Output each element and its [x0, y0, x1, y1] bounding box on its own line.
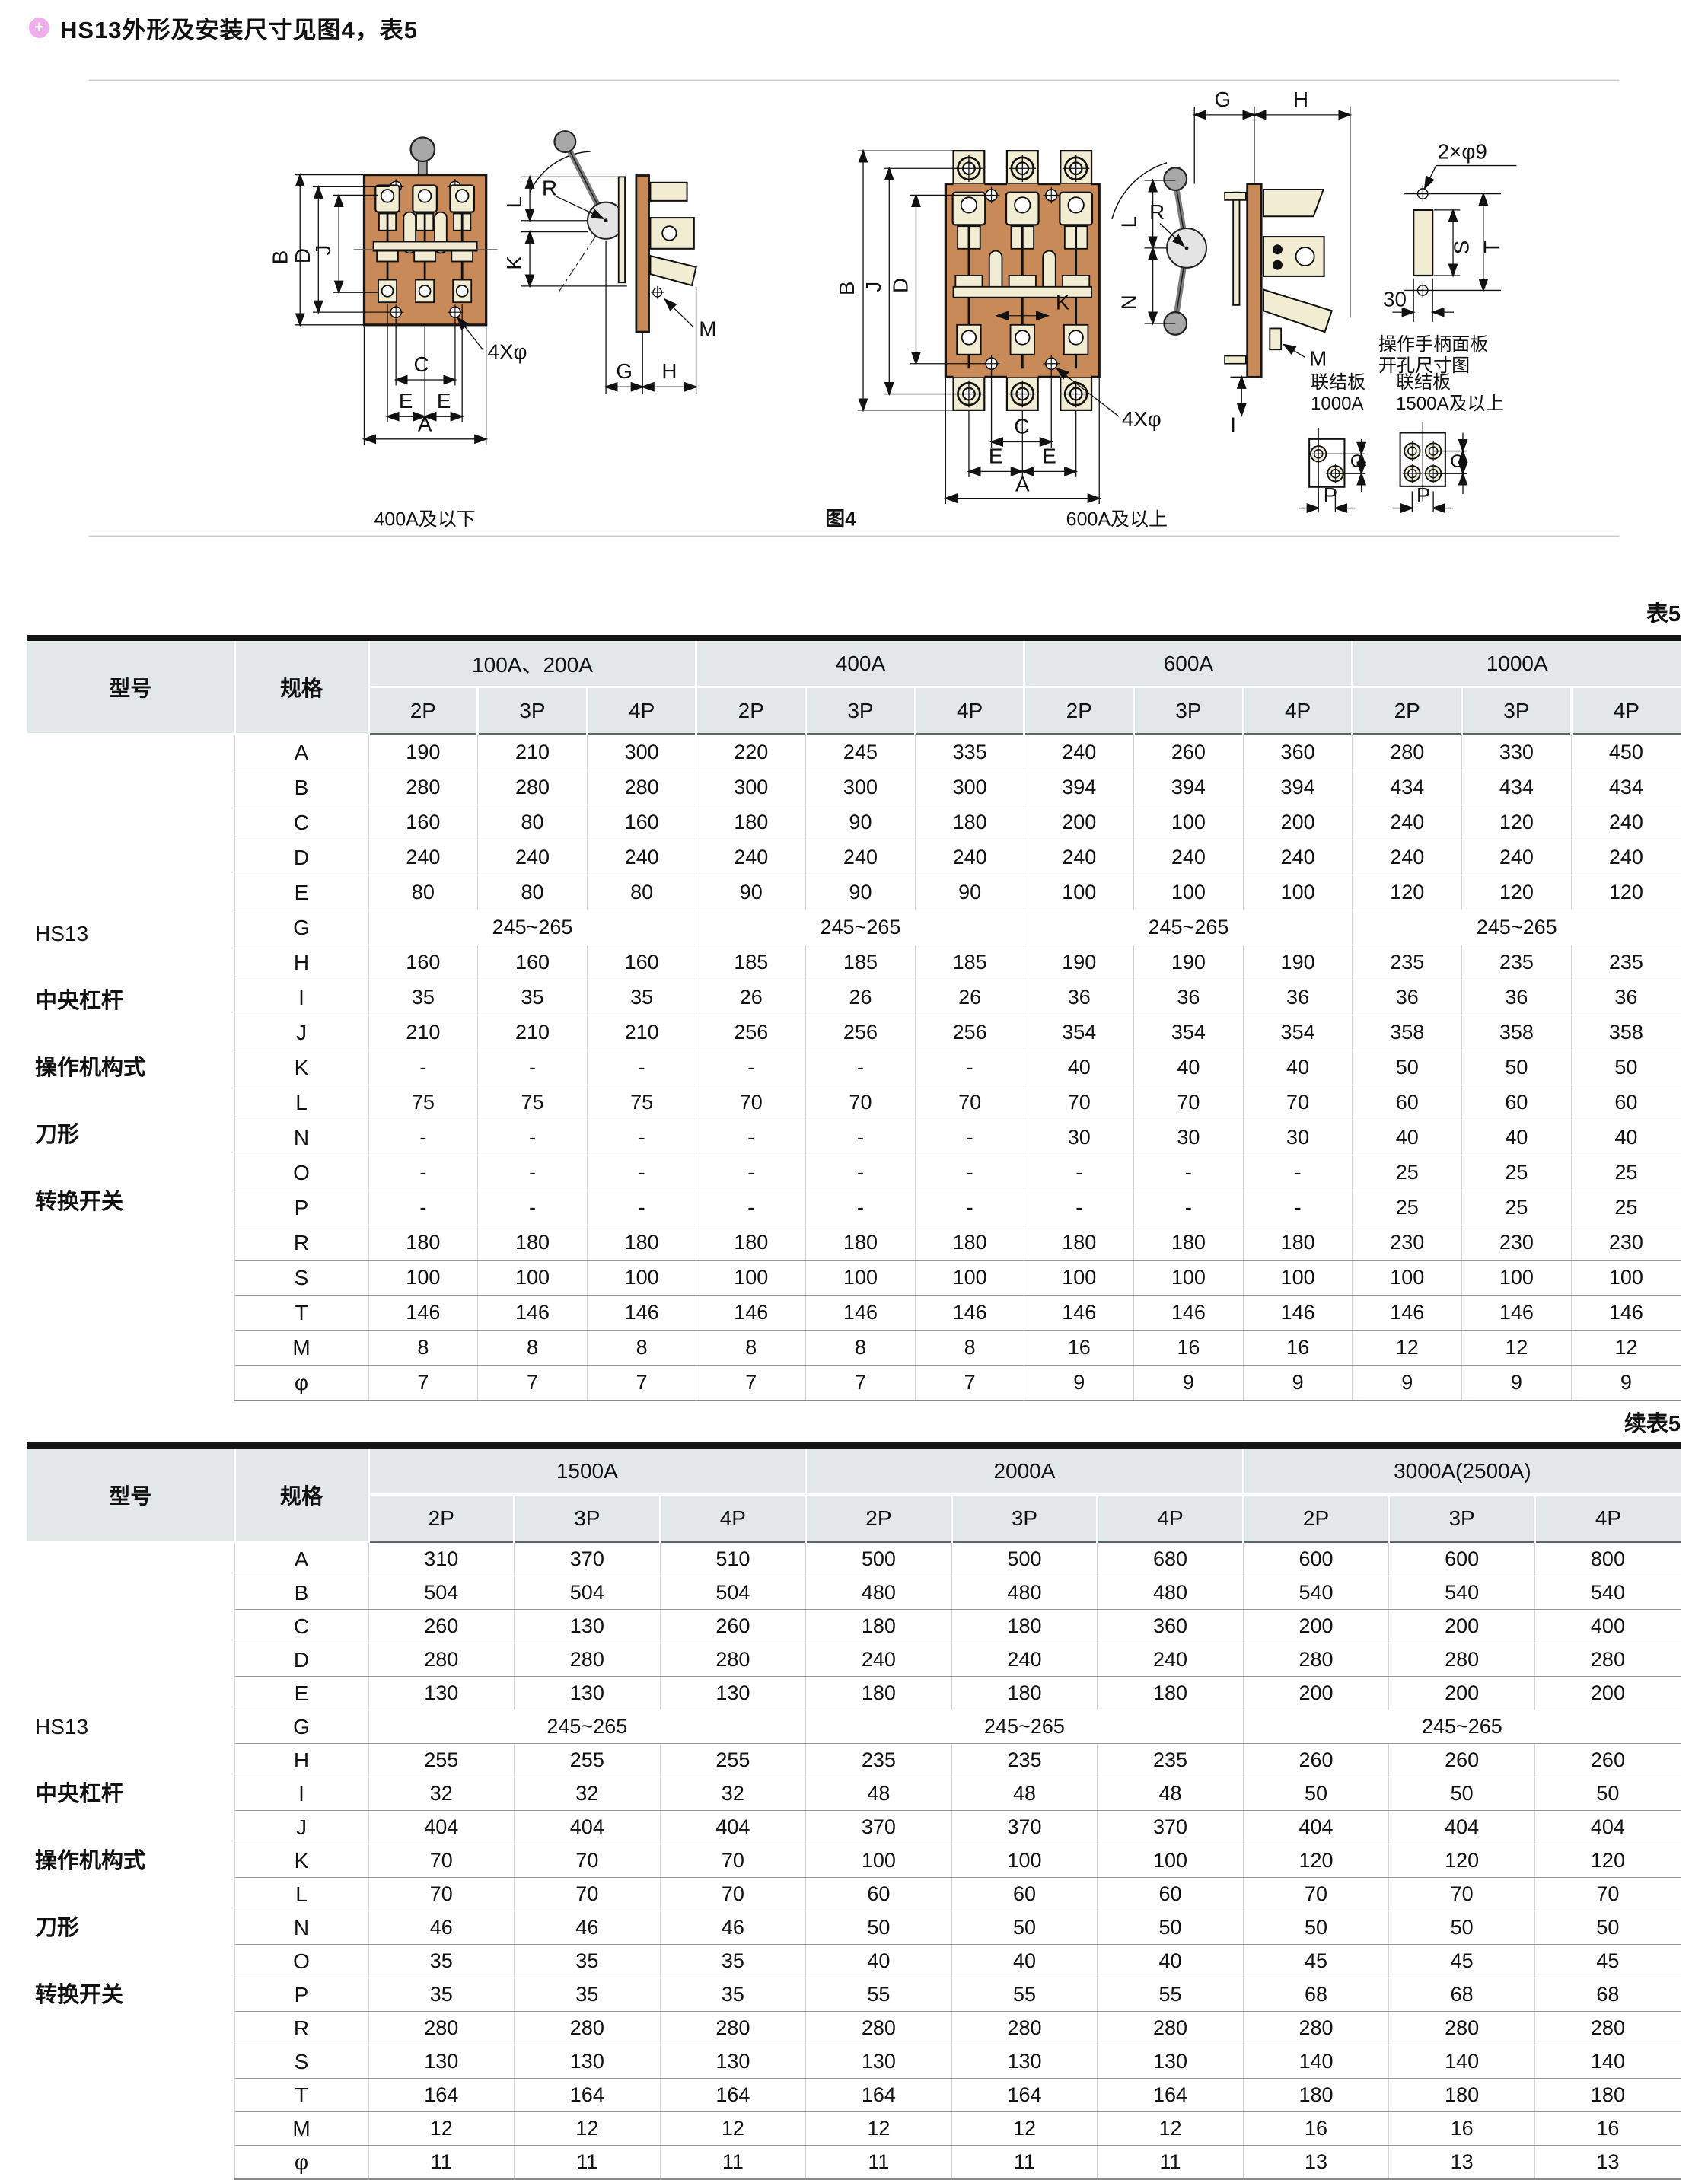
cell-E-4: 180: [951, 1677, 1098, 1710]
cell-T-4: 146: [806, 1296, 916, 1331]
cell-N-0: 46: [368, 1911, 515, 1945]
cell-N-11: 40: [1571, 1120, 1681, 1155]
table-row-D: D280280280240240240280280280: [27, 1643, 1681, 1677]
cell-N-9: 40: [1353, 1120, 1462, 1155]
cell-I-5: 48: [1098, 1777, 1244, 1811]
dim-label-j2: J: [862, 282, 885, 292]
cell-φ-2: 7: [587, 1366, 696, 1401]
cell-C-1: 80: [478, 805, 588, 840]
cell-H-4: 235: [951, 1744, 1098, 1777]
cell-O-7: 45: [1389, 1945, 1535, 1978]
cell-φ-6: 13: [1243, 2146, 1389, 2180]
cell-R-1: 180: [478, 1225, 588, 1261]
cell-φ-2: 11: [660, 2146, 806, 2180]
cell-B-0: 504: [368, 1576, 515, 1610]
dim-label-g2: G: [1214, 88, 1231, 111]
cell-T-0: 146: [368, 1296, 478, 1331]
spec-cell-φ: φ: [234, 2146, 368, 2180]
col-header-spec: 规格: [234, 1445, 368, 1542]
spec-cell-H: H: [234, 945, 368, 980]
cell-C-6: 200: [1243, 1610, 1389, 1643]
cell-T-6: 180: [1243, 2079, 1389, 2112]
cell-I-7: 36: [1134, 980, 1244, 1015]
cell-J-10: 358: [1462, 1015, 1572, 1050]
cell-A-8: 800: [1534, 1542, 1681, 1576]
cell-M-4: 12: [951, 2112, 1098, 2146]
cell-O-5: -: [915, 1155, 1024, 1190]
cell-E-1: 130: [515, 1677, 661, 1710]
dim-label-p2: P: [1416, 483, 1431, 507]
table-row-C: C1608016018090180200100200240120240: [27, 805, 1681, 840]
cell-R-5: 180: [915, 1225, 1024, 1261]
cell-C-11: 240: [1571, 805, 1681, 840]
model-line-3: 刀形: [35, 1895, 234, 1962]
cell-B-6: 394: [1024, 770, 1134, 805]
cell-A-9: 280: [1353, 735, 1462, 770]
spec-cell-C: C: [234, 805, 368, 840]
spec-cell-P: P: [234, 1190, 368, 1225]
cell-I-6: 50: [1243, 1777, 1389, 1811]
cell-J-3: 370: [806, 1811, 952, 1844]
cell-R-3: 280: [806, 2012, 952, 2045]
cell-K-2: 70: [660, 1844, 806, 1878]
cell-R-11: 230: [1571, 1225, 1681, 1261]
cell-B-1: 504: [515, 1576, 661, 1610]
cell-I-10: 36: [1462, 980, 1572, 1015]
spec-cell-D: D: [234, 840, 368, 875]
cell-N-6: 50: [1243, 1911, 1389, 1945]
cell-φ-5: 11: [1098, 2146, 1244, 2180]
cell-O-2: 35: [660, 1945, 806, 1978]
cell-K-1: 70: [515, 1844, 661, 1878]
cell-A-1: 370: [515, 1542, 661, 1576]
cell-I-8: 50: [1534, 1777, 1681, 1811]
cell-B-6: 540: [1243, 1576, 1389, 1610]
cell-H-5: 185: [915, 945, 1024, 980]
group-header-2: 600A: [1024, 638, 1353, 687]
cell-φ-3: 11: [806, 2146, 952, 2180]
spec-cell-M: M: [234, 1331, 368, 1366]
cell-J-7: 404: [1389, 1811, 1535, 1844]
table-row-N: N------303030404040: [27, 1120, 1681, 1155]
cell-J-8: 354: [1243, 1015, 1353, 1050]
table-row-C: C260130260180180360200200400: [27, 1610, 1681, 1643]
cell-M-9: 12: [1353, 1331, 1462, 1366]
dim-label-e4: E: [1042, 444, 1056, 467]
cell-φ-1: 7: [478, 1366, 588, 1401]
dim-label-m2: M: [1309, 347, 1327, 371]
cell-P-0: 35: [368, 1978, 515, 2012]
cell-C-8: 200: [1243, 805, 1353, 840]
spec-cell-K: K: [234, 1844, 368, 1878]
cell-I-2: 35: [587, 980, 696, 1015]
table-row-G: G245~265245~265245~265: [27, 1710, 1681, 1744]
cell-S-6: 100: [1024, 1261, 1134, 1296]
cell-B-7: 540: [1389, 1576, 1535, 1610]
model-line-3: 刀形: [35, 1101, 234, 1168]
cell-O-1: -: [478, 1155, 588, 1190]
cell-D-4: 240: [951, 1643, 1098, 1677]
cell-R-2: 280: [660, 2012, 806, 2045]
table-row-R: R280280280280280280280280280: [27, 2012, 1681, 2045]
cell-L-8: 70: [1243, 1085, 1353, 1120]
bullet-icon: +: [29, 18, 49, 38]
group-header-1: 2000A: [806, 1445, 1244, 1495]
cell-S-4: 100: [806, 1261, 916, 1296]
cell-A-2: 300: [587, 735, 696, 770]
cell-B-0: 280: [368, 770, 478, 805]
table-row-L: L757575707070707070606060: [27, 1085, 1681, 1120]
sub-header-1-2: 4P: [915, 687, 1024, 735]
cell-T-2: 164: [660, 2079, 806, 2112]
cell-J-1: 404: [515, 1811, 661, 1844]
link2-caption-2: 1500A及以上: [1396, 394, 1504, 414]
table-row-O: O353535404040454545: [27, 1945, 1681, 1978]
cell-M-0: 12: [368, 2112, 515, 2146]
sub-header-3-0: 2P: [1353, 687, 1462, 735]
cell-D-3: 240: [696, 840, 806, 875]
cell-G-merged-2: 245~265: [1024, 910, 1353, 945]
cell-L-4: 60: [951, 1878, 1098, 1911]
spec-cell-K: K: [234, 1050, 368, 1085]
cell-T-8: 146: [1243, 1296, 1353, 1331]
cell-φ-0: 11: [368, 2146, 515, 2180]
cell-L-1: 70: [515, 1878, 661, 1911]
cell-I-5: 26: [915, 980, 1024, 1015]
cell-A-5: 335: [915, 735, 1024, 770]
cell-J-4: 256: [806, 1015, 916, 1050]
cell-T-10: 146: [1462, 1296, 1572, 1331]
cell-N-5: 50: [1098, 1911, 1244, 1945]
cell-L-4: 70: [806, 1085, 916, 1120]
cell-O-3: -: [696, 1155, 806, 1190]
cell-A-0: 190: [368, 735, 478, 770]
cell-C-2: 260: [660, 1610, 806, 1643]
cell-O-1: 35: [515, 1945, 661, 1978]
table-row-S: S130130130130130130140140140: [27, 2045, 1681, 2079]
cell-P-2: 35: [660, 1978, 806, 2012]
cell-H-10: 235: [1462, 945, 1572, 980]
cell-T-3: 164: [806, 2079, 952, 2112]
cell-T-5: 164: [1098, 2079, 1244, 2112]
spec-cell-O: O: [234, 1155, 368, 1190]
cell-K-1: -: [478, 1050, 588, 1085]
sub-header-2-0: 2P: [1243, 1495, 1389, 1542]
cell-L-3: 60: [806, 1878, 952, 1911]
cell-E-10: 120: [1462, 875, 1572, 910]
cell-I-0: 32: [368, 1777, 515, 1811]
cell-M-5: 12: [1098, 2112, 1244, 2146]
cell-L-8: 70: [1534, 1878, 1681, 1911]
dim-label-i2: I: [1230, 413, 1236, 437]
cell-G-merged-3: 245~265: [1353, 910, 1681, 945]
cell-E-0: 80: [368, 875, 478, 910]
table-row-M: M121212121212161616: [27, 2112, 1681, 2146]
cell-D-7: 280: [1389, 1643, 1535, 1677]
spec-cell-L: L: [234, 1085, 368, 1120]
cell-S-8: 100: [1243, 1261, 1353, 1296]
dim-label-o2: O: [1450, 451, 1464, 472]
spec-cell-J: J: [234, 1811, 368, 1844]
cell-O-6: -: [1024, 1155, 1134, 1190]
sub-header-1-0: 2P: [696, 687, 806, 735]
cell-E-4: 90: [806, 875, 916, 910]
cell-φ-0: 7: [368, 1366, 478, 1401]
cell-D-10: 240: [1462, 840, 1572, 875]
cell-R-0: 280: [368, 2012, 515, 2045]
cell-R-7: 180: [1134, 1225, 1244, 1261]
cell-H-11: 235: [1571, 945, 1681, 980]
cell-D-8: 280: [1534, 1643, 1681, 1677]
cell-B-8: 540: [1534, 1576, 1681, 1610]
sub-header-2-1: 3P: [1134, 687, 1244, 735]
cell-L-0: 70: [368, 1878, 515, 1911]
cell-N-6: 30: [1024, 1120, 1134, 1155]
cell-M-2: 12: [660, 2112, 806, 2146]
model-line-2: 操作机构式: [35, 1828, 234, 1895]
cell-K-5: -: [915, 1050, 1024, 1085]
cell-R-5: 280: [1098, 2012, 1244, 2045]
cell-S-2: 100: [587, 1261, 696, 1296]
spec-cell-A: A: [234, 735, 368, 770]
dim-label-h2: H: [1293, 88, 1308, 111]
cell-J-0: 404: [368, 1811, 515, 1844]
cell-E-6: 200: [1243, 1677, 1389, 1710]
cell-D-1: 280: [515, 1643, 661, 1677]
cell-A-10: 330: [1462, 735, 1572, 770]
cell-A-11: 450: [1571, 735, 1681, 770]
cell-A-6: 600: [1243, 1542, 1389, 1576]
cell-T-0: 164: [368, 2079, 515, 2112]
cell-D-8: 240: [1243, 840, 1353, 875]
cell-J-5: 370: [1098, 1811, 1244, 1844]
cell-B-9: 434: [1353, 770, 1462, 805]
spec-cell-P: P: [234, 1978, 368, 2012]
table-row-P: P---------252525: [27, 1190, 1681, 1225]
cell-R-6: 280: [1243, 2012, 1389, 2045]
cell-N-4: -: [806, 1120, 916, 1155]
cell-R-4: 280: [951, 2012, 1098, 2045]
cell-φ-11: 9: [1571, 1366, 1681, 1401]
cell-S-6: 140: [1243, 2045, 1389, 2079]
cell-R-6: 180: [1024, 1225, 1134, 1261]
cell-M-11: 12: [1571, 1331, 1681, 1366]
table5-continued-tag: 续表5: [27, 1412, 1681, 1436]
cell-I-9: 36: [1353, 980, 1462, 1015]
sub-header-3-1: 3P: [1462, 687, 1572, 735]
cell-E-9: 120: [1353, 875, 1462, 910]
cell-N-8: 30: [1243, 1120, 1353, 1155]
cell-C-7: 100: [1134, 805, 1244, 840]
cell-D-5: 240: [1098, 1643, 1244, 1677]
cell-L-5: 60: [1098, 1878, 1244, 1911]
cell-S-4: 130: [951, 2045, 1098, 2079]
cell-φ-3: 7: [696, 1366, 806, 1401]
cell-J-1: 210: [478, 1015, 588, 1050]
cell-E-1: 80: [478, 875, 588, 910]
cell-K-8: 40: [1243, 1050, 1353, 1085]
cell-O-7: -: [1134, 1155, 1244, 1190]
cell-J-4: 370: [951, 1811, 1098, 1844]
cell-H-6: 260: [1243, 1744, 1389, 1777]
cell-A-7: 260: [1134, 735, 1244, 770]
cell-R-0: 180: [368, 1225, 478, 1261]
cell-B-3: 300: [696, 770, 806, 805]
cell-A-7: 600: [1389, 1542, 1535, 1576]
dim-label-m-left: M: [699, 317, 716, 341]
cell-H-0: 160: [368, 945, 478, 980]
cell-A-5: 680: [1098, 1542, 1244, 1576]
cell-T-7: 146: [1134, 1296, 1244, 1331]
cell-O-4: -: [806, 1155, 916, 1190]
cell-A-4: 245: [806, 735, 916, 770]
cell-D-6: 240: [1024, 840, 1134, 875]
cell-B-5: 480: [1098, 1576, 1244, 1610]
cell-P-5: 55: [1098, 1978, 1244, 2012]
cell-P-2: -: [587, 1190, 696, 1225]
table-row-A: HS13中央杠杆操作机构式刀形转换开关A19021030022024533524…: [27, 735, 1681, 770]
cell-O-5: 40: [1098, 1945, 1244, 1978]
sub-header-1-2: 4P: [1098, 1495, 1244, 1542]
group-header-0: 100A、200A: [368, 638, 696, 687]
cell-S-10: 100: [1462, 1261, 1572, 1296]
table-row-L: L707070606060707070: [27, 1878, 1681, 1911]
model-line-4: 转换开关: [35, 1962, 234, 2029]
sub-header-2-2: 4P: [1534, 1495, 1681, 1542]
cell-D-5: 240: [915, 840, 1024, 875]
cell-E-8: 100: [1243, 875, 1353, 910]
page-title: HS13外形及安装尺寸见图4，表5: [60, 11, 418, 45]
cell-M-3: 12: [806, 2112, 952, 2146]
cell-φ-4: 11: [951, 2146, 1098, 2180]
cell-S-5: 130: [1098, 2045, 1244, 2079]
cell-E-7: 100: [1134, 875, 1244, 910]
table-row-B: B280280280300300300394394394434434434: [27, 770, 1681, 805]
cell-O-10: 25: [1462, 1155, 1572, 1190]
cell-A-1: 210: [478, 735, 588, 770]
cell-E-3: 90: [696, 875, 806, 910]
model-line-2: 操作机构式: [35, 1034, 234, 1101]
cell-S-11: 100: [1571, 1261, 1681, 1296]
cell-C-0: 160: [368, 805, 478, 840]
cell-A-3: 500: [806, 1542, 952, 1576]
model-line-4: 转换开关: [35, 1168, 234, 1235]
cell-C-6: 200: [1024, 805, 1134, 840]
cell-C-5: 360: [1098, 1610, 1244, 1643]
cell-M-6: 16: [1243, 2112, 1389, 2146]
cell-K-6: 40: [1024, 1050, 1134, 1085]
dim-label-g-left: G: [616, 359, 633, 383]
cell-I-7: 50: [1389, 1777, 1535, 1811]
cell-K-0: 70: [368, 1844, 515, 1878]
cell-G-merged-1: 245~265: [806, 1710, 1244, 1744]
sub-header-0-1: 3P: [478, 687, 588, 735]
cell-H-9: 235: [1353, 945, 1462, 980]
cell-E-2: 130: [660, 1677, 806, 1710]
table-row-B: B504504504480480480540540540: [27, 1576, 1681, 1610]
cell-O-4: 40: [951, 1945, 1098, 1978]
model-line-1: 中央杠杆: [35, 967, 234, 1034]
cell-S-1: 130: [515, 2045, 661, 2079]
cell-E-5: 180: [1098, 1677, 1244, 1710]
spec-cell-I: I: [234, 980, 368, 1015]
cell-O-3: 40: [806, 1945, 952, 1978]
cell-C-9: 240: [1353, 805, 1462, 840]
cell-P-4: 55: [951, 1978, 1098, 2012]
cell-A-0: 310: [368, 1542, 515, 1576]
cell-T-1: 164: [515, 2079, 661, 2112]
dim-label-c: C: [413, 352, 429, 376]
cell-I-6: 36: [1024, 980, 1134, 1015]
panel-hole-note: 2×φ9: [1438, 139, 1487, 163]
cell-D-6: 280: [1243, 1643, 1389, 1677]
cell-H-6: 190: [1024, 945, 1134, 980]
cell-S-5: 100: [915, 1261, 1024, 1296]
dim-label-b2: B: [835, 281, 859, 295]
cell-D-9: 240: [1353, 840, 1462, 875]
cell-J-0: 210: [368, 1015, 478, 1050]
cell-K-11: 50: [1571, 1050, 1681, 1085]
cell-M-7: 16: [1134, 1331, 1244, 1366]
table-row-R: R180180180180180180180180180230230230: [27, 1225, 1681, 1261]
group-header-0: 1500A: [368, 1445, 806, 1495]
cell-L-2: 70: [660, 1878, 806, 1911]
cell-φ-7: 13: [1389, 2146, 1535, 2180]
cell-D-0: 280: [368, 1643, 515, 1677]
cell-L-1: 75: [478, 1085, 588, 1120]
cell-R-3: 180: [696, 1225, 806, 1261]
cell-S-0: 130: [368, 2045, 515, 2079]
dim-label-o1: O: [1350, 451, 1365, 472]
cell-K-7: 120: [1389, 1844, 1535, 1878]
cell-M-1: 12: [515, 2112, 661, 2146]
cell-S-1: 100: [478, 1261, 588, 1296]
cell-T-2: 146: [587, 1296, 696, 1331]
front-view-400a: [354, 138, 498, 325]
dim-label-d2: D: [888, 278, 912, 293]
cell-H-5: 235: [1098, 1744, 1244, 1777]
spec-cell-I: I: [234, 1777, 368, 1811]
cell-φ-8: 9: [1243, 1366, 1353, 1401]
caption-fig4: 图4: [825, 509, 856, 531]
cell-M-4: 8: [806, 1331, 916, 1366]
cell-J-6: 404: [1243, 1811, 1389, 1844]
cell-H-8: 190: [1243, 945, 1353, 980]
cell-L-10: 60: [1462, 1085, 1572, 1120]
table-row-M: M888888161616121212: [27, 1331, 1681, 1366]
group-header-3: 1000A: [1353, 638, 1681, 687]
cell-E-8: 200: [1534, 1677, 1681, 1710]
cell-B-8: 394: [1243, 770, 1353, 805]
cell-T-3: 146: [696, 1296, 806, 1331]
cell-I-4: 26: [806, 980, 916, 1015]
cell-I-3: 26: [696, 980, 806, 1015]
spec-cell-T: T: [234, 1296, 368, 1331]
cell-H-4: 185: [806, 945, 916, 980]
cell-D-0: 240: [368, 840, 478, 875]
cell-B-2: 280: [587, 770, 696, 805]
cell-C-8: 400: [1534, 1610, 1681, 1643]
cell-J-6: 354: [1024, 1015, 1134, 1050]
cell-C-1: 130: [515, 1610, 661, 1643]
cell-P-7: 68: [1389, 1978, 1535, 2012]
dim-label-b: B: [269, 250, 292, 265]
cell-I-1: 35: [478, 980, 588, 1015]
dim-label-l-left: L: [502, 196, 526, 208]
sub-header-0-1: 3P: [515, 1495, 661, 1542]
spec-cell-S: S: [234, 1261, 368, 1296]
cell-J-5: 256: [915, 1015, 1024, 1050]
